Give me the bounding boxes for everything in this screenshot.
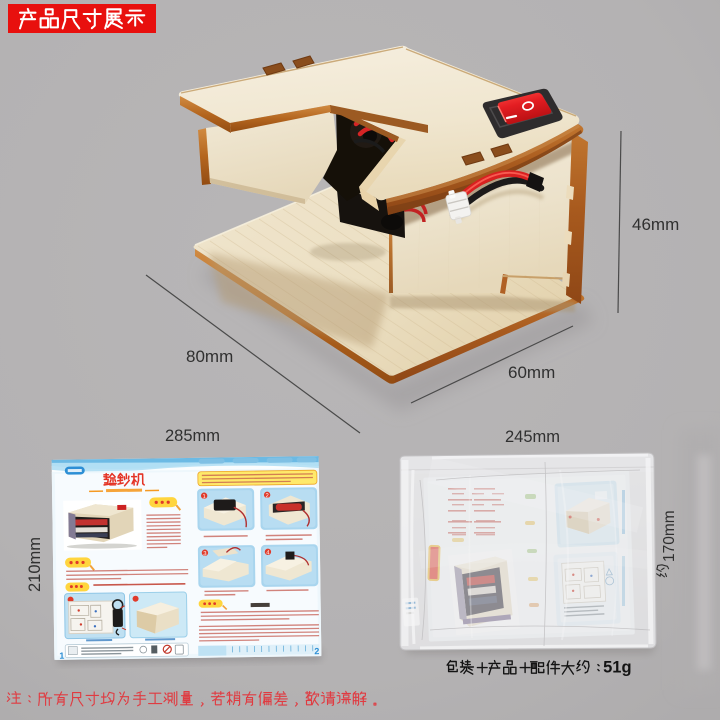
svg-text:245mm: 245mm xyxy=(505,428,560,446)
svg-text:51g: 51g xyxy=(603,659,631,677)
svg-text:80mm: 80mm xyxy=(186,347,233,366)
svg-text:285mm: 285mm xyxy=(165,427,220,445)
svg-text:46mm: 46mm xyxy=(632,215,679,234)
svg-text:2: 2 xyxy=(314,646,319,656)
svg-text:60mm: 60mm xyxy=(508,363,555,382)
svg-text:1: 1 xyxy=(59,651,64,661)
svg-text:210mm: 210mm xyxy=(26,537,44,592)
svg-text:170mm: 170mm xyxy=(661,510,678,562)
